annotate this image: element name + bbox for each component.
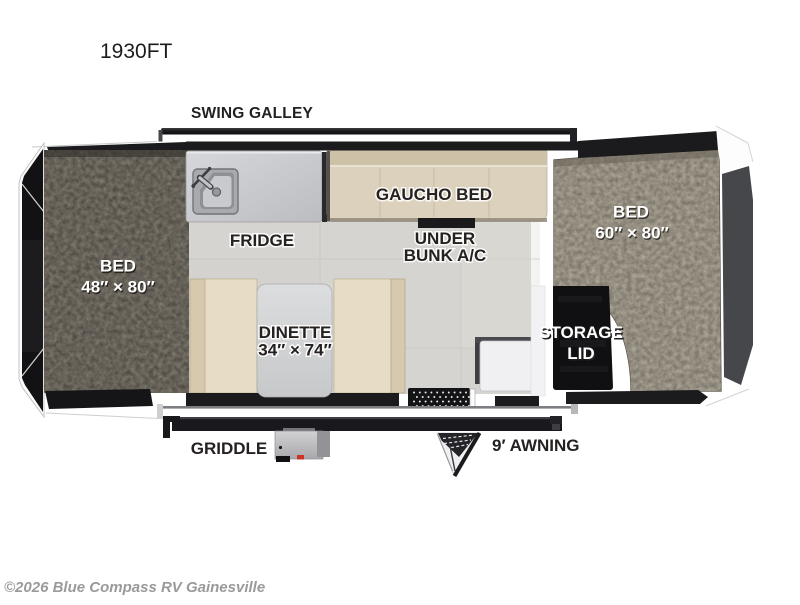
svg-text:©2026 Blue Compass RV Gainesvi: ©2026 Blue Compass RV Gainesville [4,579,265,596]
svg-text:STORAGE: STORAGE [539,323,623,342]
svg-text:60″ × 80″: 60″ × 80″ [595,224,668,243]
svg-text:LID: LID [567,344,594,363]
svg-text:SWING GALLEY: SWING GALLEY [191,105,314,122]
svg-text:GAUCHO BED: GAUCHO BED [376,185,492,204]
svg-text:BED: BED [100,257,136,276]
svg-text:FRIDGE: FRIDGE [230,231,294,250]
svg-text:48″ × 80″: 48″ × 80″ [81,278,154,297]
svg-text:DINETTE: DINETTE [259,323,332,342]
svg-text:34″ × 74″: 34″ × 74″ [258,341,331,360]
svg-text:1930FT: 1930FT [100,40,173,63]
svg-text:BED: BED [613,203,649,222]
svg-text:9′ AWNING: 9′ AWNING [492,436,580,455]
svg-text:BUNK A/C: BUNK A/C [404,246,486,265]
svg-text:GRIDDLE: GRIDDLE [191,439,268,458]
